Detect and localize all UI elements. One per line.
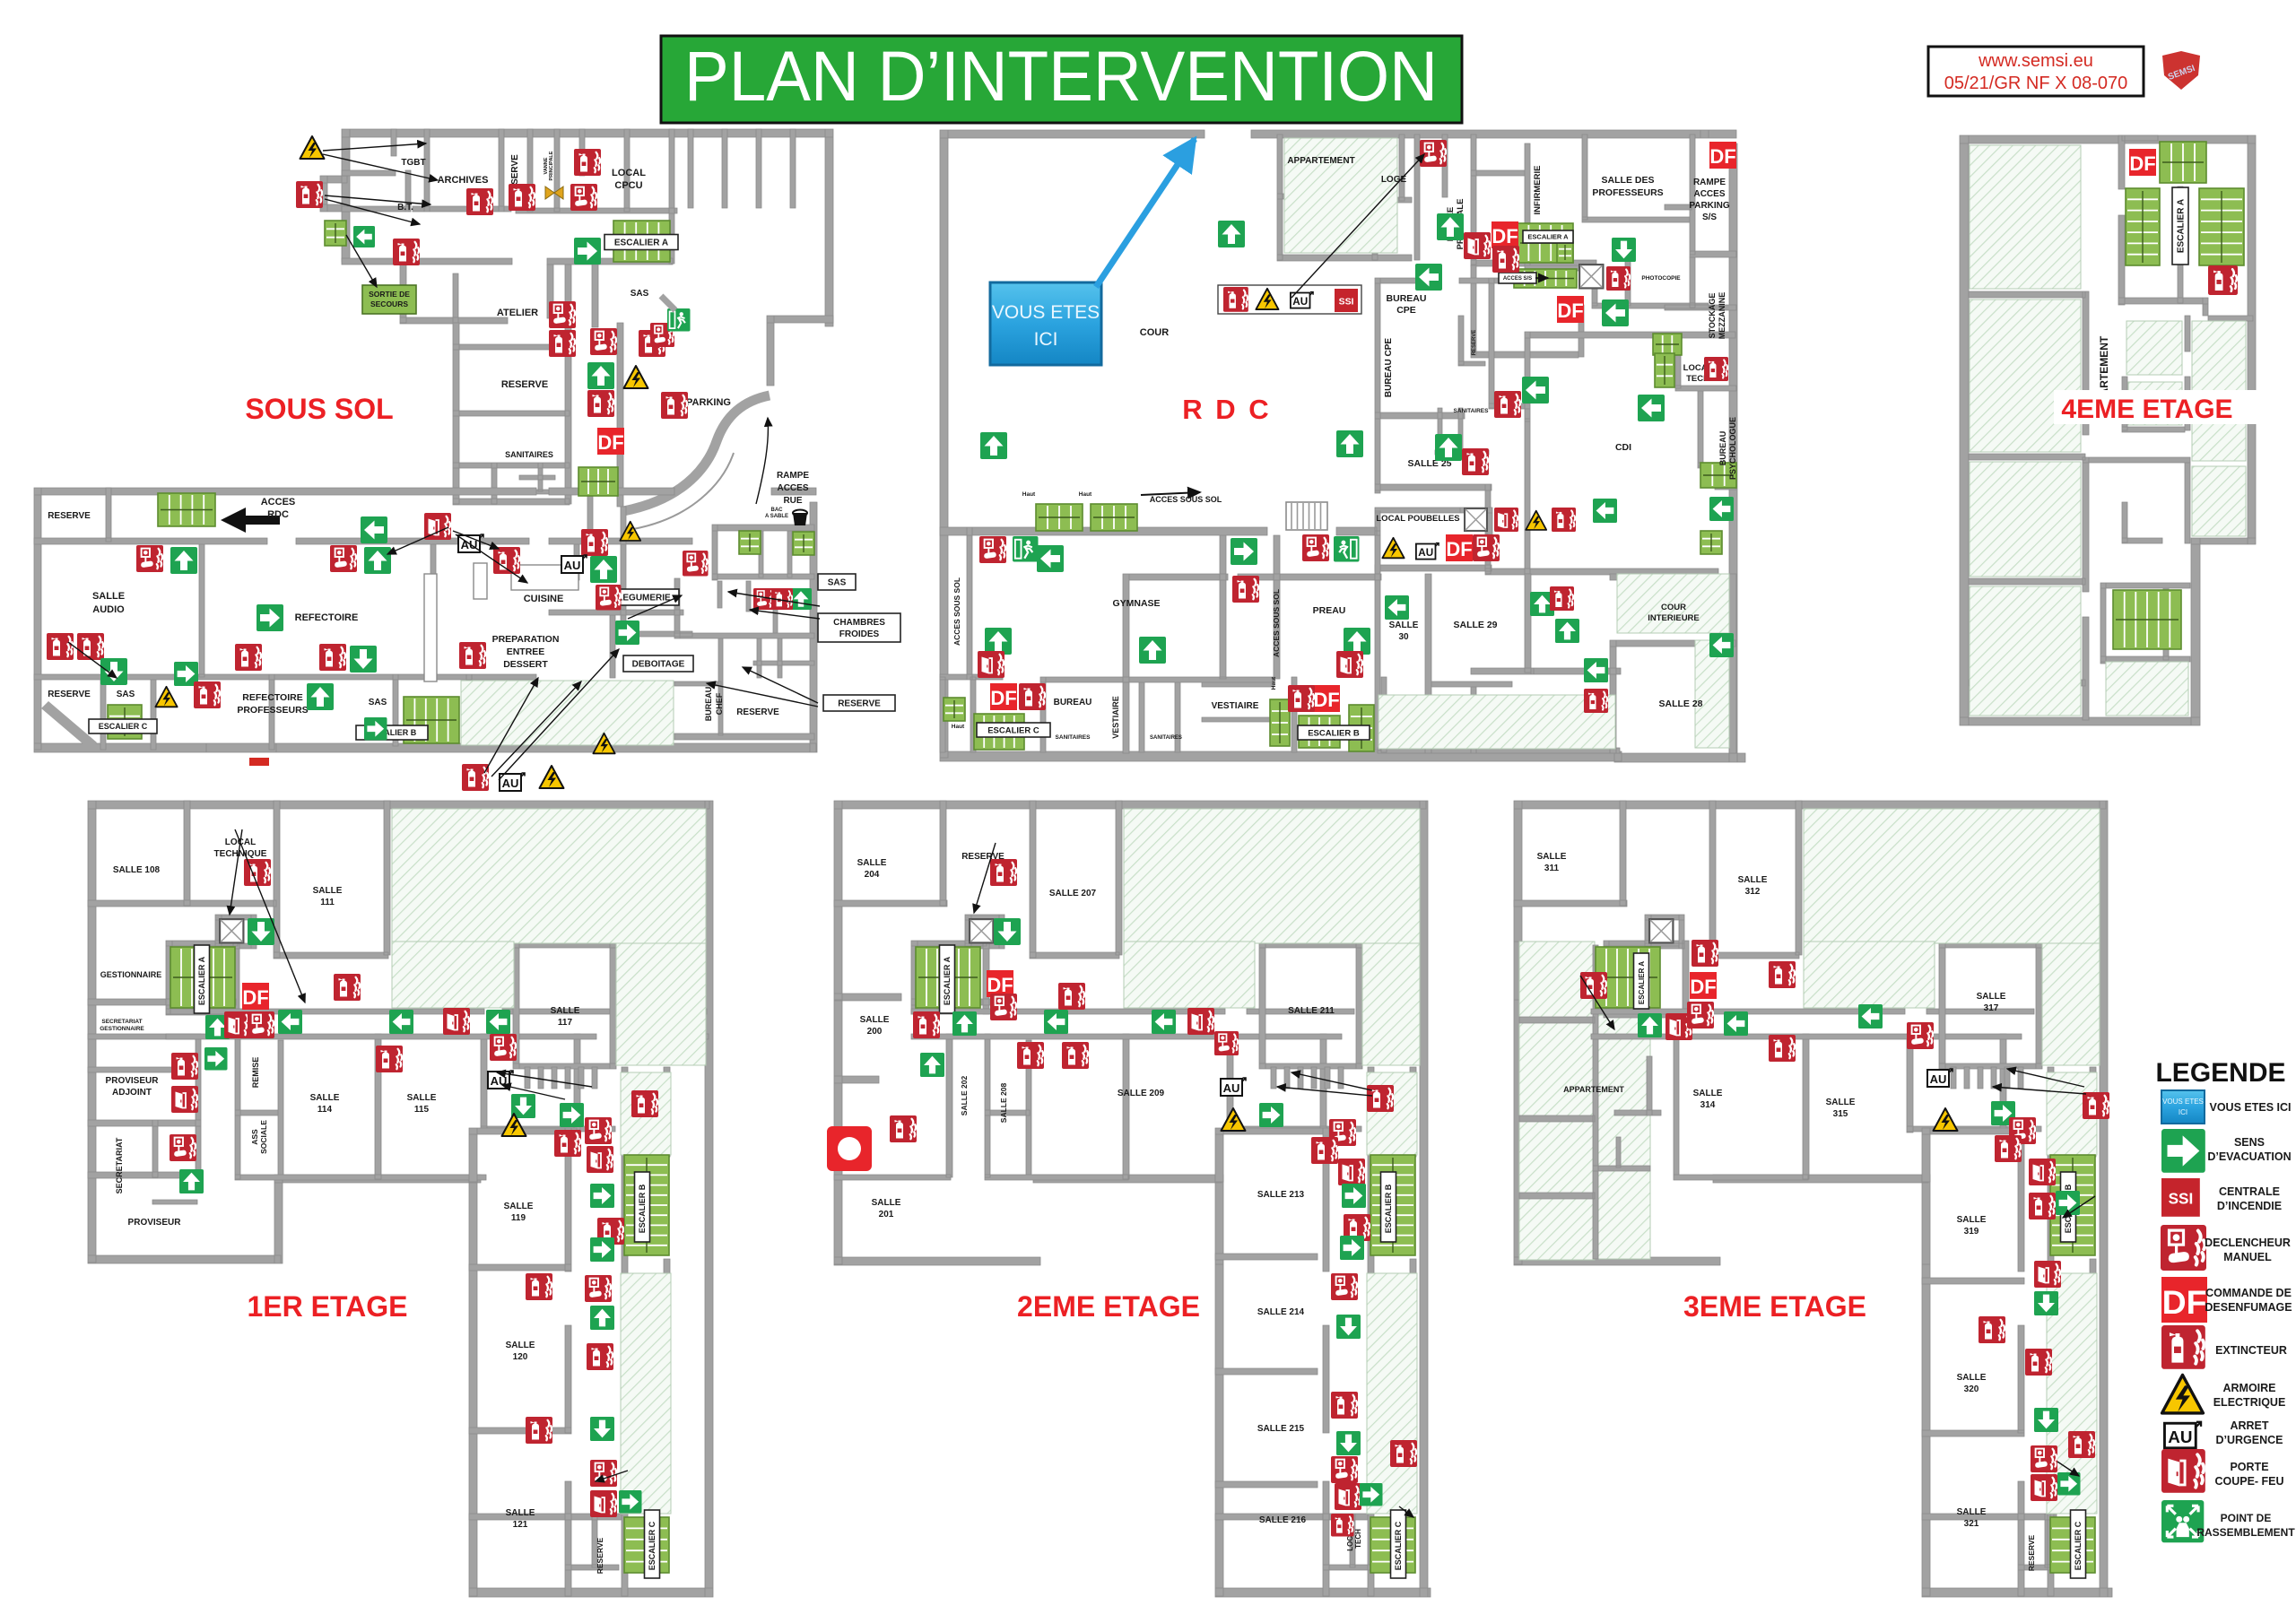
svg-text:COUR: COUR	[1140, 327, 1169, 338]
svg-text:LOCAL: LOCAL	[612, 168, 646, 178]
svg-text:ACCES S/S: ACCES S/S	[1503, 276, 1532, 282]
svg-text:SALLE: SALLE	[857, 858, 887, 868]
svg-text:SAS: SAS	[117, 690, 135, 699]
svg-text:SALLE: SALLE	[92, 591, 125, 602]
svg-text:EXTINCTEUR: EXTINCTEUR	[2215, 1344, 2287, 1357]
svg-text:ACCES SOUS SOL: ACCES SOUS SOL	[1150, 495, 1222, 504]
svg-text:ACCES SOUS SOL: ACCES SOUS SOL	[1272, 589, 1281, 657]
svg-text:ADJOINT: ADJOINT	[112, 1088, 152, 1098]
svg-text:SALLE: SALLE	[504, 1202, 534, 1211]
svg-text:SECRETARIAT: SECRETARIAT	[115, 1137, 124, 1193]
svg-text:SANITAIRES: SANITAIRES	[1150, 735, 1182, 741]
svg-text:ESCALIER A: ESCALIER A	[2177, 199, 2187, 253]
svg-text:3EME ETAGE: 3EME ETAGE	[1683, 1290, 1866, 1323]
svg-text:SALLE 29: SALLE 29	[1453, 620, 1497, 630]
svg-text:AUDIO: AUDIO	[92, 604, 125, 615]
svg-text:ASS: ASS	[250, 1129, 259, 1145]
svg-text:SORTIE DE: SORTIE DE	[369, 290, 410, 299]
svg-text:ACCES: ACCES	[777, 483, 808, 493]
svg-text:319: 319	[1964, 1227, 1979, 1237]
svg-text:BUREAU: BUREAU	[704, 687, 713, 722]
svg-text:SALLE 214: SALLE 214	[1257, 1307, 1305, 1317]
svg-text:REFECTOIRE: REFECTOIRE	[295, 612, 359, 623]
svg-text:SANITAIRES: SANITAIRES	[505, 450, 553, 459]
svg-text:RESERVE: RESERVE	[48, 511, 91, 521]
svg-text:SANITAIRES: SANITAIRES	[1454, 408, 1490, 414]
svg-text:4EME ETAGE: 4EME ETAGE	[2061, 395, 2232, 424]
svg-text:SALLE: SALLE	[506, 1341, 535, 1350]
svg-text:LEGUMERIE: LEGUMERIE	[617, 594, 671, 603]
svg-text:SALLE 28: SALLE 28	[1658, 699, 1702, 709]
svg-text:SALLE 108: SALLE 108	[113, 865, 161, 875]
svg-text:VESTIAIRE: VESTIAIRE	[1212, 701, 1259, 711]
svg-text:PROFESSEURS: PROFESSEURS	[1592, 187, 1663, 198]
svg-text:INTERIEURE: INTERIEURE	[1648, 613, 1700, 623]
svg-text:ESCALIER C: ESCALIER C	[99, 722, 148, 731]
svg-text:SOUS SOL: SOUS SOL	[245, 393, 393, 425]
svg-text:PHOTOCOPIE: PHOTOCOPIE	[1641, 275, 1681, 282]
svg-text:REMISE: REMISE	[251, 1057, 260, 1089]
svg-text:Haut: Haut	[1022, 491, 1036, 498]
svg-text:SALLE: SALLE	[1826, 1098, 1856, 1107]
svg-text:315: 315	[1833, 1109, 1848, 1119]
svg-text:ICI: ICI	[2179, 1108, 2187, 1116]
svg-text:MANUEL: MANUEL	[2223, 1251, 2272, 1263]
svg-text:SALLE: SALLE	[872, 1198, 901, 1208]
svg-text:SALLE DES: SALLE DES	[1602, 175, 1655, 186]
svg-text:SALLE 215: SALLE 215	[1257, 1424, 1305, 1434]
svg-text:SALLE: SALLE	[1957, 1373, 1987, 1383]
svg-text:RESERVE: RESERVE	[736, 707, 779, 717]
svg-text:VOUS ETES ICI: VOUS ETES ICI	[2210, 1101, 2292, 1114]
svg-text:SAS: SAS	[631, 289, 649, 299]
svg-text:SECRETARIAT: SECRETARIAT	[101, 1019, 142, 1025]
svg-text:CDI: CDI	[1615, 442, 1631, 453]
svg-text:114: 114	[317, 1105, 333, 1115]
svg-text:ESCALIER B: ESCALIER B	[638, 1184, 647, 1233]
svg-text:RAMPE: RAMPE	[777, 471, 809, 481]
svg-text:RUE: RUE	[783, 496, 802, 506]
svg-text:COUR: COUR	[1661, 603, 1686, 612]
svg-text:GESTIONNAIRE: GESTIONNAIRE	[100, 1026, 144, 1032]
svg-text:SALLE: SALLE	[1957, 1215, 1987, 1225]
svg-text:Haut: Haut	[952, 724, 965, 730]
svg-text:RAMPE: RAMPE	[1693, 178, 1726, 187]
svg-text:200: 200	[867, 1027, 883, 1037]
svg-text:ESCALIER C: ESCALIER C	[2074, 1521, 2083, 1570]
svg-text:COUPE- FEU: COUPE- FEU	[2214, 1475, 2283, 1488]
svg-text:CPCU: CPCU	[614, 180, 642, 191]
svg-text:TECHNIQUE: TECHNIQUE	[214, 849, 267, 859]
svg-text:PRINCIPALE: PRINCIPALE	[549, 151, 554, 180]
svg-text:BAC: BAC	[771, 508, 784, 513]
svg-text:FROIDES: FROIDES	[839, 629, 880, 639]
svg-text:MEZZANINE: MEZZANINE	[1718, 292, 1726, 340]
svg-text:SALLE: SALLE	[1957, 1507, 1987, 1517]
svg-text:RESERVE: RESERVE	[838, 699, 881, 709]
svg-text:PREAU: PREAU	[1313, 605, 1346, 616]
svg-text:CHEF: CHEF	[715, 692, 724, 715]
svg-text:CHAMBRES: CHAMBRES	[833, 618, 885, 628]
svg-text:SALLE: SALLE	[860, 1015, 890, 1025]
svg-text:A SABLE: A SABLE	[765, 514, 788, 519]
svg-text:111: 111	[320, 898, 335, 907]
svg-text:ESCALIER C: ESCALIER C	[648, 1521, 657, 1570]
svg-text:ESCALIER A: ESCALIER A	[1638, 961, 1646, 1004]
svg-text:SALLE: SALLE	[313, 886, 343, 896]
svg-text:320: 320	[1964, 1384, 1979, 1394]
svg-text:ACCES SOUS SOL: ACCES SOUS SOL	[952, 577, 961, 646]
svg-text:LEGENDE: LEGENDE	[2155, 1058, 2285, 1088]
svg-text:PARKING: PARKING	[1689, 201, 1730, 211]
svg-text:SALLE 209: SALLE 209	[1118, 1089, 1165, 1098]
svg-text:ESCALIER A: ESCALIER A	[614, 239, 668, 248]
svg-text:SAS: SAS	[828, 578, 847, 588]
svg-text:RASSEMBLEMENT: RASSEMBLEMENT	[2196, 1526, 2295, 1539]
svg-text:S/S: S/S	[1702, 213, 1717, 222]
svg-text:GESTIONNAIRE: GESTIONNAIRE	[100, 970, 162, 979]
svg-text:SALLE 207: SALLE 207	[1049, 889, 1097, 898]
svg-text:SALLE: SALLE	[310, 1093, 340, 1103]
svg-text:STOCKAGE: STOCKAGE	[1708, 293, 1717, 339]
svg-text:ESCALIER A: ESCALIER A	[1527, 233, 1569, 241]
svg-text:30: 30	[1398, 632, 1409, 642]
svg-text:CUISINE: CUISINE	[524, 594, 564, 604]
svg-text:314: 314	[1700, 1100, 1716, 1110]
svg-text:ELECTRIQUE: ELECTRIQUE	[2213, 1396, 2286, 1409]
svg-text:ACCES: ACCES	[261, 497, 296, 508]
svg-text:120: 120	[513, 1352, 528, 1362]
svg-text:R D C: R D C	[1182, 394, 1271, 425]
svg-text:ICI: ICI	[1034, 329, 1058, 350]
svg-text:ESCALIER A: ESCALIER A	[197, 956, 206, 1005]
svg-text:COMMANDE DE: COMMANDE DE	[2205, 1287, 2292, 1299]
svg-text:BUREAU: BUREAU	[1718, 431, 1727, 466]
svg-text:CPE: CPE	[1396, 305, 1416, 316]
svg-text:APPARTEMENT: APPARTEMENT	[1287, 156, 1354, 166]
svg-text:121: 121	[513, 1520, 528, 1530]
svg-text:DESENFUMAGE: DESENFUMAGE	[2205, 1301, 2292, 1314]
svg-text:GYMNASE: GYMNASE	[1112, 598, 1160, 609]
svg-text:ESCALIER C: ESCALIER C	[987, 725, 1039, 735]
svg-text:SALLE: SALLE	[1693, 1089, 1723, 1098]
svg-text:APPARTEMENT: APPARTEMENT	[1563, 1085, 1624, 1094]
svg-text:PROVISEUR: PROVISEUR	[128, 1218, 182, 1228]
svg-text:D’URGENCE: D’URGENCE	[2215, 1434, 2283, 1446]
svg-text:SALLE 216: SALLE 216	[1259, 1515, 1307, 1525]
svg-text:CENTRALE: CENTRALE	[2219, 1185, 2280, 1198]
svg-text:ARCHIVES: ARCHIVES	[438, 175, 489, 186]
svg-text:317: 317	[1984, 1003, 1999, 1013]
svg-text:ESCALIER C: ESCALIER C	[1394, 1521, 1403, 1570]
svg-text:PORTE: PORTE	[2230, 1461, 2268, 1473]
svg-text:INFIRMERIE: INFIRMERIE	[1533, 166, 1543, 215]
svg-text:SAS: SAS	[369, 698, 387, 707]
svg-text:SOCIALE: SOCIALE	[259, 1120, 268, 1154]
svg-text:SALLE: SALLE	[1738, 875, 1768, 885]
svg-text:SALLE 213: SALLE 213	[1257, 1190, 1305, 1200]
svg-text:BUREAU: BUREAU	[1054, 698, 1092, 707]
svg-text:RDC: RDC	[267, 509, 289, 520]
svg-text:311: 311	[1544, 864, 1560, 873]
svg-text:115: 115	[414, 1105, 430, 1115]
svg-text:SALLE: SALLE	[1537, 852, 1567, 862]
svg-text:SALLE 211: SALLE 211	[1288, 1006, 1335, 1016]
svg-text:D’EVACUATION: D’EVACUATION	[2207, 1150, 2291, 1163]
svg-text:321: 321	[1964, 1519, 1979, 1529]
svg-text:RESERVE: RESERVE	[48, 690, 91, 699]
svg-text:BUREAU: BUREAU	[1387, 293, 1427, 304]
svg-text:B.T.: B.T.	[397, 203, 413, 213]
svg-text:2EME ETAGE: 2EME ETAGE	[1017, 1290, 1200, 1323]
svg-text:ATELIER: ATELIER	[497, 308, 538, 318]
svg-text:LOCAL POUBELLES: LOCAL POUBELLES	[1376, 514, 1459, 524]
svg-text:312: 312	[1745, 887, 1761, 897]
svg-text:ACCES: ACCES	[1693, 189, 1725, 199]
svg-text:1ER ETAGE: 1ER ETAGE	[248, 1290, 408, 1323]
svg-text:Haut: Haut	[1079, 491, 1092, 498]
svg-text:ESCALIER B: ESCALIER B	[1384, 1184, 1393, 1233]
svg-text:PROFESSEURS: PROFESSEURS	[237, 705, 308, 716]
svg-text:201: 201	[879, 1210, 894, 1219]
svg-text:SALLE: SALLE	[1389, 621, 1419, 630]
svg-text:BUREAU CPE: BUREAU CPE	[1384, 338, 1394, 397]
svg-text:ARRET: ARRET	[2230, 1419, 2268, 1432]
svg-text:PARKING: PARKING	[686, 397, 731, 408]
svg-text:ESCALIER B: ESCALIER B	[1308, 728, 1360, 738]
svg-text:DECLENCHEUR: DECLENCHEUR	[2205, 1237, 2291, 1249]
svg-text:05/21/GR NF X 08-070: 05/21/GR NF X 08-070	[1944, 74, 2128, 93]
svg-text:RESERVE: RESERVE	[501, 379, 548, 390]
svg-text:119: 119	[511, 1213, 526, 1223]
svg-text:SANITAIRES: SANITAIRES	[1056, 734, 1091, 741]
svg-text:TGBT: TGBT	[401, 158, 425, 168]
svg-text:SALLE: SALLE	[1977, 992, 2006, 1002]
svg-text:204: 204	[865, 870, 880, 880]
svg-text:PREPARATION: PREPARATION	[492, 634, 560, 645]
svg-text:SALLE 202: SALLE 202	[960, 1076, 969, 1116]
svg-text:PLAN D’INTERVENTION: PLAN D’INTERVENTION	[684, 36, 1438, 116]
svg-text:www.semsi.eu: www.semsi.eu	[1978, 51, 2093, 71]
svg-text:ESCALIER A: ESCALIER A	[943, 956, 952, 1005]
svg-text:DEBOITAGE: DEBOITAGE	[632, 660, 685, 670]
svg-text:SECOURS: SECOURS	[370, 299, 408, 308]
svg-text:SALLE 208: SALLE 208	[999, 1083, 1008, 1124]
svg-text:DESSERT: DESSERT	[503, 659, 548, 670]
svg-text:VOUS ETES: VOUS ETES	[2162, 1098, 2204, 1106]
svg-text:ARMOIRE: ARMOIRE	[2222, 1382, 2275, 1394]
svg-text:LOGE: LOGE	[1381, 175, 1407, 185]
svg-text:PSYCHOLOGUE: PSYCHOLOGUE	[1728, 417, 1737, 480]
svg-text:117: 117	[558, 1018, 573, 1028]
svg-text:VOUS ETES: VOUS ETES	[992, 302, 1100, 323]
svg-text:D’INCENDIE: D’INCENDIE	[2217, 1200, 2282, 1212]
svg-text:VESTIAIRE: VESTIAIRE	[1111, 696, 1120, 739]
svg-text:SENS: SENS	[2234, 1136, 2265, 1149]
svg-text:SALLE: SALLE	[551, 1006, 580, 1016]
svg-text:PROVISEUR: PROVISEUR	[106, 1076, 160, 1086]
svg-text:RESERVE: RESERVE	[1472, 330, 1477, 356]
svg-text:POINT DE: POINT DE	[2221, 1512, 2272, 1524]
svg-text:REFECTOIRE: REFECTOIRE	[242, 692, 302, 703]
svg-text:RESERVE: RESERVE	[2027, 1534, 2036, 1571]
svg-text:Haut: Haut	[1271, 676, 1277, 690]
svg-text:SALLE: SALLE	[407, 1093, 437, 1103]
svg-text:TECH: TECH	[1354, 1529, 1362, 1549]
svg-text:ENTREE: ENTREE	[507, 647, 545, 657]
svg-text:RESERVE: RESERVE	[596, 1537, 604, 1574]
svg-text:SALLE: SALLE	[506, 1508, 535, 1518]
